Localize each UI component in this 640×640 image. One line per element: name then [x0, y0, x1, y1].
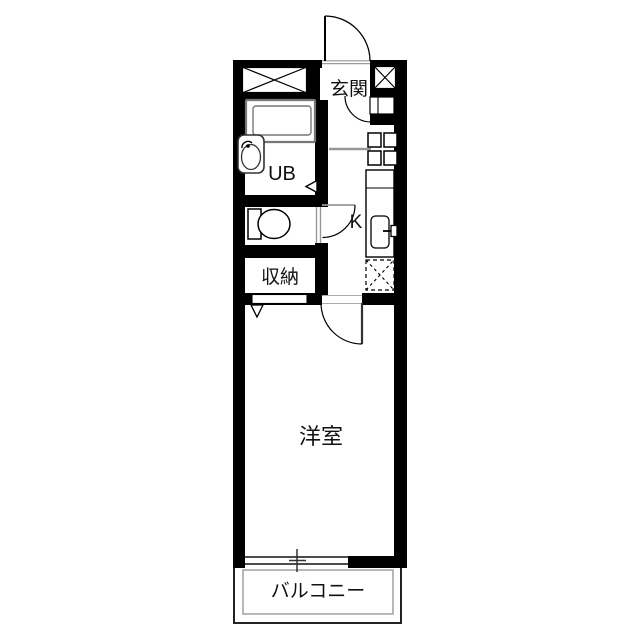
entrance-label: 玄関 — [330, 78, 368, 100]
wall-shaft-right — [307, 60, 320, 100]
kitchen — [366, 133, 397, 290]
western-room-label: 洋室 — [299, 424, 343, 449]
kitchen-sink-icon — [371, 216, 389, 248]
wall-toilet-door-stub — [315, 243, 328, 258]
floor-plan: 玄関 UB K 収納 洋室 バルコニー — [0, 0, 640, 640]
toilet-bowl-icon — [258, 210, 290, 239]
cabinet-box — [370, 97, 394, 114]
unit-bath-label: UB — [268, 163, 296, 185]
washbasin-bowl — [242, 145, 261, 170]
washbasin-drain-dot — [246, 144, 250, 148]
toilet-room — [248, 205, 355, 243]
storage-closet — [251, 295, 307, 318]
room-door-arc — [321, 303, 362, 344]
floor-plan-drawing: 玄関 UB K 収納 洋室 バルコニー — [0, 0, 640, 640]
closet-door-triangle-icon — [251, 305, 263, 317]
meter-box-entrance — [374, 66, 396, 89]
wall-bottom-right — [348, 556, 407, 568]
wall-storage-right — [315, 258, 328, 295]
pipe-shaft-top-left — [242, 67, 307, 93]
balcony-label: バルコニー — [271, 581, 366, 602]
sliding-window — [245, 549, 348, 572]
sink-faucet — [391, 226, 397, 237]
kitchen-label: K — [350, 212, 363, 233]
stove-burner — [384, 151, 397, 165]
stove-burner — [384, 133, 397, 147]
wall-ub-bottom — [245, 195, 328, 207]
closet-door-panel — [252, 295, 307, 304]
room-door — [321, 296, 362, 345]
storage-label: 収納 — [261, 266, 299, 288]
ub-door-triangle-icon — [306, 181, 317, 193]
entrance-door-arc — [325, 16, 370, 61]
stove-burner — [368, 133, 381, 147]
stove-burner — [368, 151, 381, 165]
